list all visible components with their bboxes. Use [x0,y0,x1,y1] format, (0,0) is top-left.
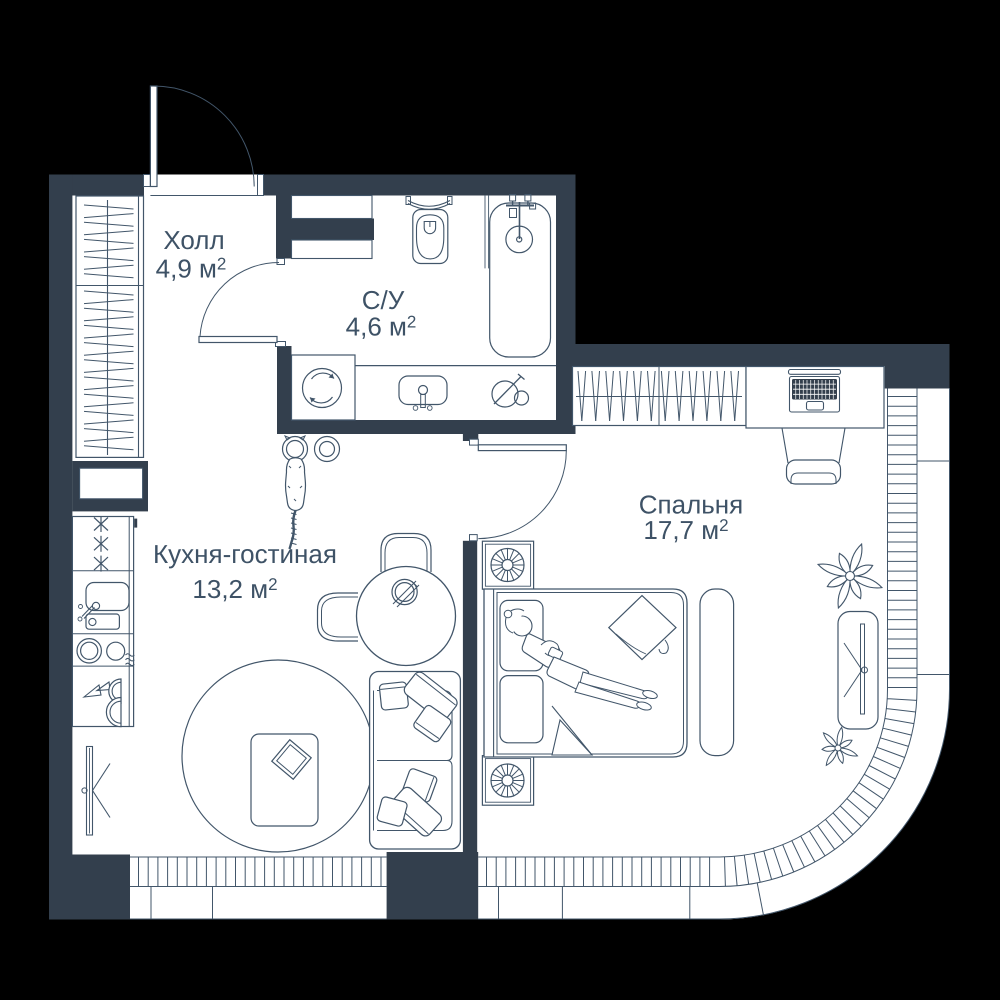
svg-text:17,7 м2: 17,7 м2 [643,515,728,545]
svg-text:13,2 м2: 13,2 м2 [192,574,277,604]
svg-text:4,6 м2: 4,6 м2 [346,312,417,342]
svg-text:Кухня-гостиная: Кухня-гостиная [153,539,337,569]
svg-text:Холл: Холл [163,225,224,255]
svg-text:4,9 м2: 4,9 м2 [156,254,227,284]
svg-text:С/У: С/У [362,285,405,315]
